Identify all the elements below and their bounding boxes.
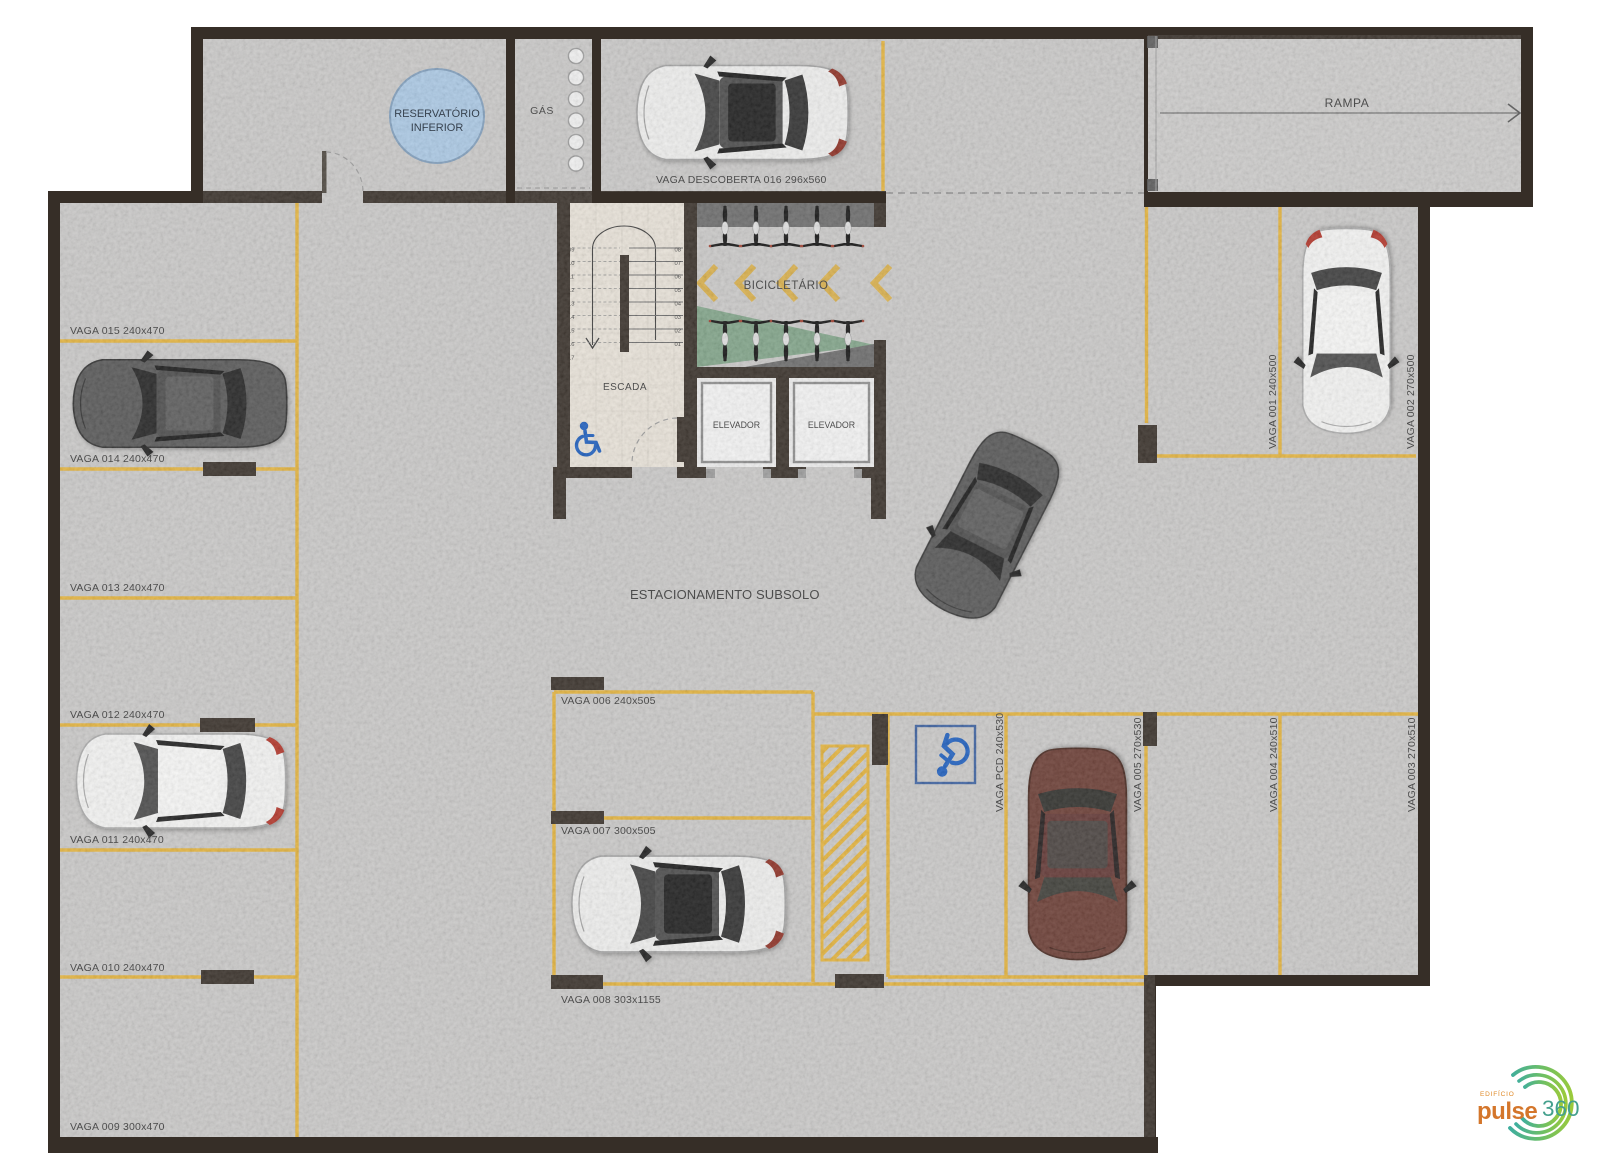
svg-text:360: 360 [1542,1096,1580,1121]
svg-text:pulse: pulse [1477,1098,1537,1125]
svg-text:EDIFÍCIO: EDIFÍCIO [1480,1089,1515,1098]
